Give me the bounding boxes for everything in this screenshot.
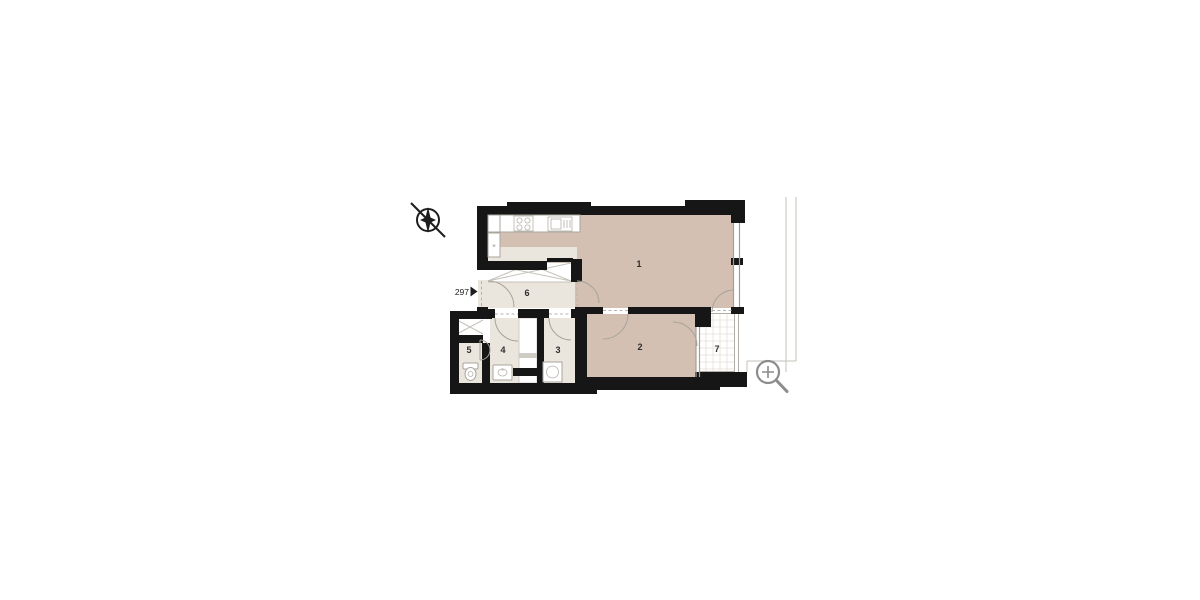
floor-plan-page: * 1 2 3 4 5 6 7 297 (0, 0, 1200, 600)
window-glazing-room2-balcony (696, 327, 700, 377)
magnifier-zoom-icon[interactable] (757, 361, 787, 392)
wardrobe-closet-small (457, 319, 483, 335)
adjacent-structure-outline (747, 197, 796, 372)
entrance-marker: 297 (455, 287, 478, 298)
floor-plan-svg[interactable]: * 1 2 3 4 5 6 7 297 (0, 0, 1200, 600)
unit-number-label: 297 (455, 287, 469, 297)
north-arrow-icon (411, 203, 445, 237)
room-5-label: 5 (466, 345, 471, 355)
washing-machine-icon (543, 362, 562, 382)
washbasin-icon (493, 365, 512, 380)
room-7-label: 7 (714, 344, 719, 354)
fridge-star-symbol: * (492, 243, 496, 251)
room-2-label: 2 (637, 342, 642, 352)
room-3-label: 3 (555, 345, 560, 355)
room-4-label: 4 (500, 345, 505, 355)
room-1-label: 1 (636, 259, 641, 269)
room-6-label: 6 (524, 288, 529, 298)
entrance-direction-arrow-icon (471, 287, 478, 297)
